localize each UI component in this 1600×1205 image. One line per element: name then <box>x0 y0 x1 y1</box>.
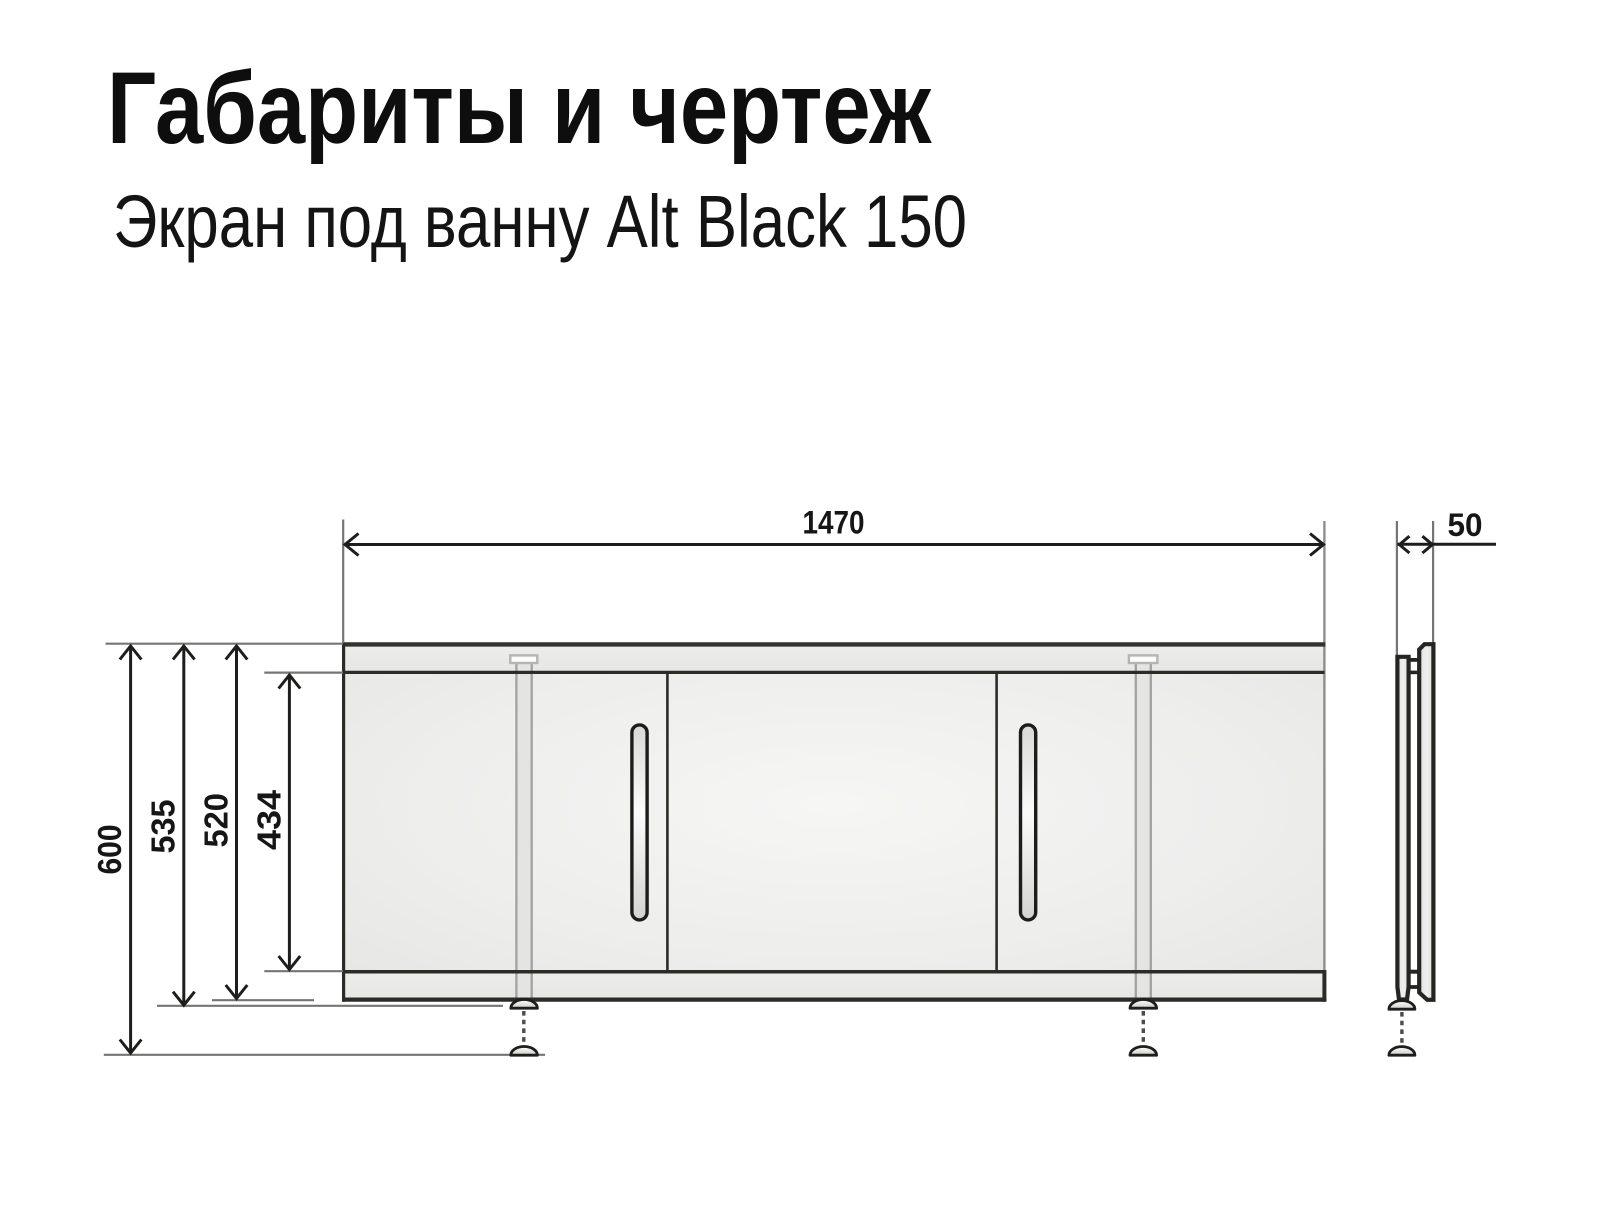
svg-text:50: 50 <box>1448 507 1483 543</box>
svg-text:434: 434 <box>251 789 288 850</box>
svg-text:Экран под ванну Alt Black 150: Экран под ванну Alt Black 150 <box>113 180 967 263</box>
svg-text:1470: 1470 <box>803 505 865 541</box>
svg-text:Габариты и чертеж: Габариты и чертеж <box>107 51 932 165</box>
svg-text:600: 600 <box>91 825 128 875</box>
svg-text:520: 520 <box>198 793 235 848</box>
svg-text:535: 535 <box>145 800 182 854</box>
